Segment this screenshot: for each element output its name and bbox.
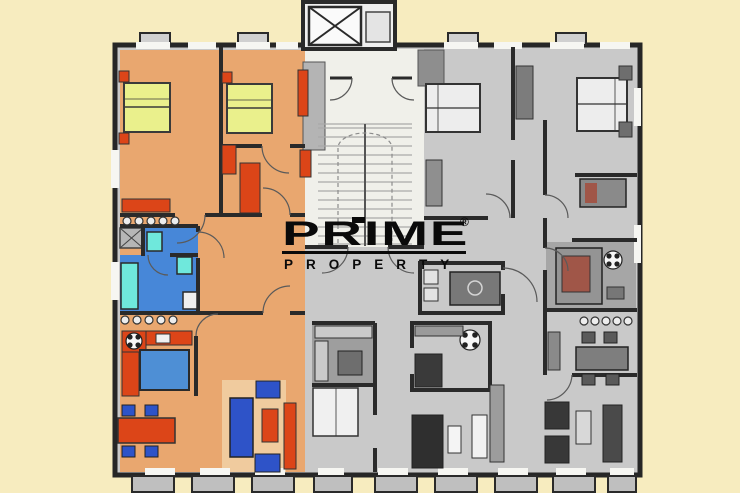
kitchen3-table-dark: [415, 354, 442, 387]
balcony-bay: [314, 476, 352, 492]
watermark-subtitle: PROPERTY: [282, 257, 474, 272]
washer: [183, 292, 197, 309]
radiator-dot: [602, 317, 610, 325]
wardrobe-gray: [426, 160, 442, 206]
radiator-dot: [145, 316, 153, 324]
chair-gray: [582, 332, 595, 343]
fan-dot: [472, 332, 478, 338]
bed-white-small: [313, 388, 358, 436]
sofa-blue: [230, 398, 253, 457]
balcony-bay: [132, 476, 174, 492]
door-leaf: [472, 415, 487, 458]
radiator-dot: [147, 217, 155, 225]
stove-burner-dot: [135, 342, 140, 347]
balcony-bay: [192, 476, 234, 492]
dresser-dark: [412, 415, 443, 468]
balcony-bay: [435, 476, 477, 492]
sofa-cushion: [585, 183, 597, 203]
side-table-gray: [607, 287, 624, 299]
fan-dot: [614, 261, 619, 266]
elevator-machine: [366, 12, 390, 42]
chair-gray: [606, 374, 619, 385]
radiator-dot: [121, 316, 129, 324]
fan-dot: [472, 342, 478, 348]
window-top: [188, 42, 216, 49]
watermark-brand-row: PRIME ®: [282, 220, 474, 250]
dining-table-red: [118, 418, 175, 443]
chair-blue: [122, 405, 135, 416]
radiator-dot: [580, 317, 588, 325]
balcony-bay: [553, 476, 595, 492]
coffee-table-red: [262, 409, 278, 442]
chair-gray: [604, 332, 617, 343]
toilet-cyan: [147, 232, 162, 251]
cabinet-red: [222, 145, 236, 174]
nightstand-gray: [619, 66, 632, 80]
kitchen2-table: [338, 351, 362, 375]
window-right: [634, 225, 641, 263]
window-top: [600, 42, 630, 49]
nightstand-red: [222, 72, 232, 83]
dining-table-gray: [576, 347, 628, 370]
balcony-bay: [252, 476, 294, 492]
radiator-dot: [123, 217, 131, 225]
kitchen3-counter: [415, 326, 463, 336]
armchair-blue: [256, 381, 280, 398]
radiator-dot: [157, 316, 165, 324]
nightstand-gray: [619, 122, 632, 137]
closet-gray: [516, 66, 533, 119]
window-top: [136, 42, 170, 49]
window-top: [494, 42, 522, 49]
cabinet-tall-dark: [603, 405, 622, 462]
fan-dot: [606, 261, 611, 266]
sideboard-red: [122, 199, 170, 212]
window-bottom: [610, 468, 634, 476]
tv-unit-dark: [545, 436, 569, 463]
duct-right: [418, 50, 444, 86]
window-bottom: [498, 468, 528, 476]
counter-gray: [548, 332, 560, 370]
radiator-dot: [159, 217, 167, 225]
chair-blue: [122, 446, 135, 457]
fan-dot: [606, 253, 611, 258]
floorplan-image: PRIME ® PROPERTY: [0, 0, 740, 493]
armchair-blue: [255, 454, 280, 472]
sink-cyan: [177, 257, 192, 274]
window-left: [111, 150, 119, 188]
shelf-gray: [490, 385, 504, 462]
cabinet-light: [576, 411, 591, 444]
window-top: [550, 42, 584, 49]
door-leaf: [448, 426, 461, 453]
window-bottom: [556, 468, 586, 476]
fan-dot: [614, 253, 619, 258]
kitchen-sink-inset: [156, 334, 170, 343]
window-right: [634, 88, 641, 126]
watermark-i-dot: [352, 217, 365, 223]
registered-mark: ®: [460, 215, 469, 229]
wardrobe-red: [298, 70, 308, 116]
balcony-bay: [608, 476, 636, 492]
counter-red: [122, 352, 139, 396]
window-left: [111, 262, 119, 300]
fan-dot: [462, 342, 468, 348]
chair-blue: [145, 446, 158, 457]
window-bottom: [378, 468, 408, 476]
washer-gray: [424, 288, 438, 301]
kitchen2-counter: [315, 326, 372, 338]
stove-burner-dot: [127, 342, 132, 347]
wardrobe-red: [284, 403, 296, 469]
window-bottom: [438, 468, 468, 476]
tv-unit-dark: [545, 402, 569, 429]
radiator-dot: [169, 316, 177, 324]
radiator-dot: [591, 317, 599, 325]
window-top: [276, 42, 298, 49]
stove-burner-dot: [127, 334, 132, 339]
window-top: [236, 42, 270, 49]
stove-burner-dot: [135, 334, 140, 339]
radiator-dot: [133, 316, 141, 324]
chair-gray: [582, 374, 595, 385]
nightstand-red: [119, 71, 129, 82]
window-bottom: [318, 468, 344, 476]
wardrobe-red: [300, 150, 311, 177]
watermark-brand: PRIME: [282, 220, 469, 249]
wardrobe-red: [240, 163, 260, 213]
balcony-bay: [375, 476, 417, 492]
fan-ring: [604, 251, 622, 269]
window-bottom: [200, 468, 230, 476]
window-bottom: [145, 468, 175, 476]
chair-blue: [145, 405, 158, 416]
nightstand-red: [119, 133, 129, 144]
balcony-bay: [495, 476, 537, 492]
radiator-dot: [135, 217, 143, 225]
watermark: PRIME ® PROPERTY: [282, 220, 474, 272]
bathtub-gray: [450, 272, 500, 305]
kitchen2-counter: [315, 341, 328, 381]
sink-gray: [424, 270, 438, 284]
window-top: [444, 42, 478, 49]
radiator-dot: [624, 317, 632, 325]
radiator-dot: [613, 317, 621, 325]
kitchen-table-blue: [140, 350, 189, 390]
radiator-dot: [171, 217, 179, 225]
bathtub-cyan: [121, 263, 138, 309]
